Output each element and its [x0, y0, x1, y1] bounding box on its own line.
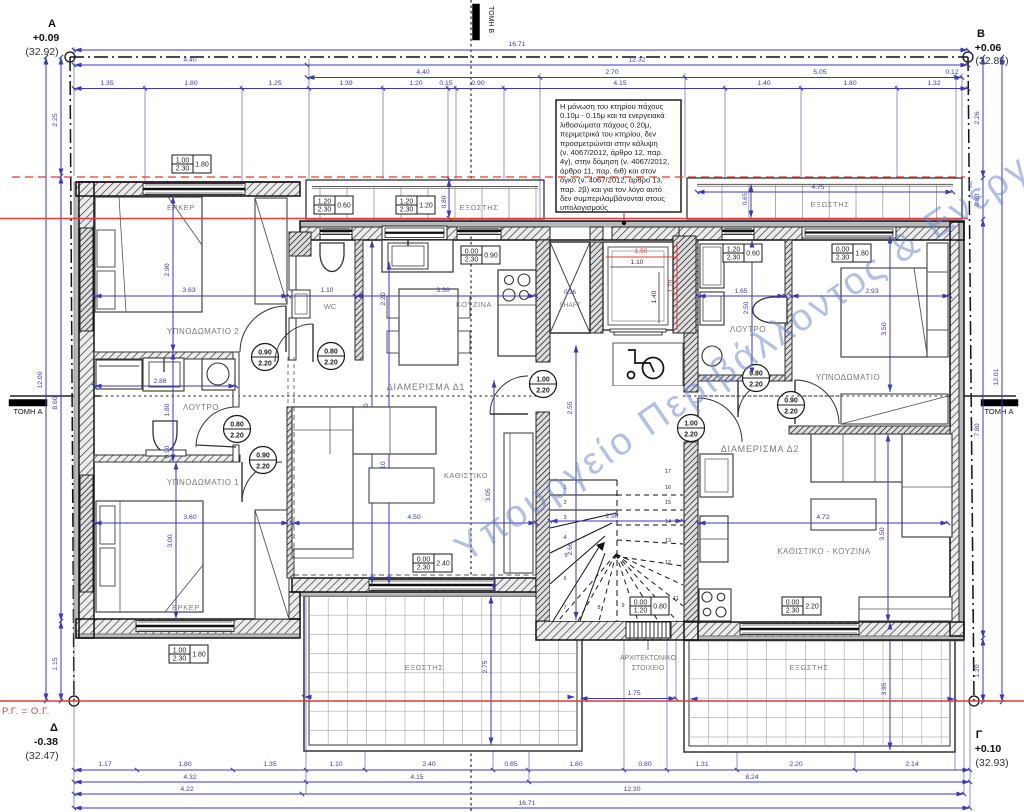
- svg-text:0.60: 0.60: [746, 251, 760, 258]
- svg-text:B: B: [977, 28, 985, 40]
- svg-text:0.00: 0.00: [465, 249, 479, 256]
- svg-text:2.14: 2.14: [905, 761, 918, 768]
- svg-text:2.26: 2.26: [974, 111, 981, 124]
- svg-text:2.40: 2.40: [422, 761, 435, 768]
- svg-text:2.20: 2.20: [258, 361, 272, 368]
- svg-text:ΕΞΩΣΤΗΣ: ΕΞΩΣΤΗΣ: [405, 663, 444, 672]
- svg-text:3.30: 3.30: [436, 287, 449, 294]
- svg-text:1.31: 1.31: [695, 761, 708, 768]
- svg-text:+0.10: +0.10: [975, 743, 1002, 755]
- svg-text:1.10: 1.10: [631, 259, 644, 266]
- svg-text:ΕΞΩΣΤΗΣ: ΕΞΩΣΤΗΣ: [811, 200, 850, 209]
- svg-text:0.00: 0.00: [634, 600, 648, 607]
- svg-text:1.40: 1.40: [757, 80, 770, 87]
- svg-text:3.95: 3.95: [881, 682, 888, 695]
- svg-text:ΚΑΘΙΣΤΙΚΟ - ΚΟΥΖΙΝΑ: ΚΑΘΙΣΤΙΚΟ - ΚΟΥΖΙΝΑ: [777, 547, 871, 556]
- svg-text:2.30: 2.30: [173, 656, 187, 663]
- svg-text:15: 15: [665, 500, 671, 506]
- svg-text:0.10μ - 0.15μ και τα ενεργειακ: 0.10μ - 0.15μ και τα ενεργειακά: [560, 111, 665, 120]
- svg-text:0.90: 0.90: [164, 445, 171, 458]
- svg-text:0.90: 0.90: [484, 253, 498, 260]
- svg-text:1.17: 1.17: [98, 761, 111, 768]
- svg-text:16.71: 16.71: [508, 41, 525, 48]
- svg-text:2.40: 2.40: [436, 561, 450, 568]
- svg-text:ΚΟΥΖΙΝΑ: ΚΟΥΖΙΝΑ: [456, 300, 492, 309]
- svg-text:1.35: 1.35: [263, 761, 276, 768]
- svg-text:6: 6: [563, 576, 566, 582]
- svg-text:2.20: 2.20: [230, 433, 244, 440]
- svg-text:4.40: 4.40: [183, 57, 196, 64]
- svg-text:13: 13: [665, 538, 671, 544]
- svg-text:3.50: 3.50: [881, 322, 888, 335]
- svg-text:12: 12: [665, 560, 671, 566]
- svg-text:1.35: 1.35: [100, 80, 113, 87]
- svg-text:2.70: 2.70: [605, 69, 618, 76]
- svg-text:ΔΙΑΜΕΡΙΣΜΑ Δ1: ΔΙΑΜΕΡΙΣΜΑ Δ1: [387, 382, 466, 392]
- svg-text:Η μόνωση του κτηρίου πάχους: Η μόνωση του κτηρίου πάχους: [560, 102, 664, 111]
- svg-text:ΚΑΘΙΣΤΙΚΟ: ΚΑΘΙΣΤΙΚΟ: [444, 471, 488, 480]
- svg-text:1.70: 1.70: [668, 279, 675, 292]
- svg-text:0.26: 0.26: [564, 290, 576, 296]
- svg-text:υπολογισμούς: υπολογισμούς: [560, 203, 608, 212]
- svg-text:1.25: 1.25: [268, 80, 281, 87]
- svg-text:4.15: 4.15: [410, 774, 423, 781]
- svg-text:0.90: 0.90: [258, 350, 272, 357]
- svg-text:άρθρο 11, παρ. 6ιθ) και στον: άρθρο 11, παρ. 6ιθ) και στον: [560, 166, 656, 175]
- svg-text:4.22: 4.22: [180, 786, 193, 793]
- svg-text:1.32: 1.32: [927, 80, 940, 87]
- svg-text:Δ: Δ: [50, 722, 58, 734]
- svg-text:2.30: 2.30: [727, 255, 741, 262]
- svg-text:(32.86): (32.86): [975, 55, 1008, 67]
- svg-text:2.55: 2.55: [567, 401, 574, 414]
- svg-text:0.80: 0.80: [230, 422, 244, 429]
- svg-text:2.75: 2.75: [482, 660, 489, 673]
- svg-text:1.20: 1.20: [409, 80, 422, 87]
- svg-text:1.00: 1.00: [176, 158, 190, 165]
- svg-text:8: 8: [597, 605, 600, 611]
- svg-text:0.80: 0.80: [653, 604, 667, 611]
- svg-text:1.20: 1.20: [634, 608, 648, 615]
- svg-text:(32.93): (32.93): [975, 757, 1008, 769]
- svg-text:1.10: 1.10: [329, 761, 342, 768]
- svg-text:A: A: [48, 18, 56, 30]
- svg-text:4γ), στην δόμηση (ν. 4067/2012: 4γ), στην δόμηση (ν. 4067/2012,: [560, 157, 669, 166]
- svg-text:ΣΤΟΙΧΕΙΟ: ΣΤΟΙΧΕΙΟ: [632, 665, 665, 672]
- svg-text:(32.92): (32.92): [25, 46, 58, 58]
- svg-text:ΥΠΝΟΔΩΜΑΤΙΟ: ΥΠΝΟΔΩΜΑΤΙΟ: [816, 373, 881, 382]
- svg-text:περιμετρικά του κτηρίου, δεν: περιμετρικά του κτηρίου, δεν: [560, 130, 656, 139]
- svg-text:προσμετρώνται στην κάλυψη: προσμετρώνται στην κάλυψη: [560, 139, 658, 148]
- svg-text:1.10: 1.10: [321, 287, 334, 294]
- svg-text:3.60: 3.60: [183, 514, 196, 521]
- svg-text:(32.47): (32.47): [25, 750, 58, 762]
- svg-text:Ρ.Γ. = Ο.Γ.: Ρ.Γ. = Ο.Γ.: [2, 706, 50, 717]
- svg-text:2.30: 2.30: [176, 166, 190, 173]
- svg-text:14: 14: [665, 519, 671, 525]
- svg-text:WC: WC: [324, 302, 337, 311]
- svg-text:2.20: 2.20: [789, 761, 802, 768]
- svg-text:2.20: 2.20: [749, 382, 763, 389]
- svg-text:2.20: 2.20: [684, 432, 698, 439]
- svg-text:2.30: 2.30: [465, 257, 479, 264]
- svg-text:2.25: 2.25: [52, 113, 59, 126]
- svg-text:2.90: 2.90: [164, 263, 171, 276]
- svg-text:2.20: 2.20: [536, 388, 550, 395]
- svg-text:0.00: 0.00: [836, 247, 850, 254]
- svg-text:2.20: 2.20: [380, 292, 387, 305]
- svg-text:1.50: 1.50: [635, 248, 648, 255]
- svg-text:+0.06: +0.06: [975, 42, 1002, 54]
- svg-text:ΤΟΜΗ A: ΤΟΜΗ A: [13, 407, 42, 416]
- svg-text:δεν συμπεριλαμβάνονται στους: δεν συμπεριλαμβάνονται στους: [560, 194, 665, 203]
- svg-text:1.20: 1.20: [727, 247, 741, 254]
- svg-text:2.20: 2.20: [805, 604, 819, 611]
- svg-text:SHAFT: SHAFT: [559, 302, 580, 309]
- svg-text:7: 7: [563, 605, 566, 611]
- svg-text:0.80: 0.80: [638, 761, 651, 768]
- svg-text:7.80: 7.80: [974, 423, 981, 436]
- svg-text:3: 3: [563, 515, 566, 521]
- svg-text:2.30: 2.30: [400, 207, 414, 214]
- svg-text:0.90: 0.90: [256, 453, 270, 460]
- svg-text:0.15: 0.15: [439, 80, 452, 87]
- svg-text:(ν. 4067/2012, άρθρο 12, παρ.: (ν. 4067/2012, άρθρο 12, παρ.: [560, 148, 663, 157]
- svg-text:0.65: 0.65: [742, 192, 749, 205]
- svg-text:ΛΟΥΤΡΟ: ΛΟΥΤΡΟ: [183, 403, 219, 412]
- svg-text:11: 11: [673, 596, 679, 602]
- svg-text:4: 4: [563, 535, 566, 541]
- svg-text:0.65: 0.65: [504, 761, 517, 768]
- svg-text:4.72: 4.72: [816, 514, 829, 521]
- svg-text:2.20: 2.20: [324, 360, 338, 367]
- svg-text:ΔΙΑΜΕΡΙΣΜΑ Δ2: ΔΙΑΜΕΡΙΣΜΑ Δ2: [721, 444, 800, 454]
- svg-text:0.00: 0.00: [786, 600, 800, 607]
- svg-text:1.80: 1.80: [569, 761, 582, 768]
- svg-text:1.00: 1.00: [536, 377, 550, 384]
- svg-text:16.71: 16.71: [518, 800, 535, 807]
- svg-text:0.90: 0.90: [784, 398, 798, 405]
- svg-text:3.00: 3.00: [167, 534, 174, 547]
- svg-text:0.00: 0.00: [417, 557, 431, 564]
- svg-text:2.30: 2.30: [786, 608, 800, 615]
- svg-text:2.30: 2.30: [417, 565, 431, 572]
- svg-text:4.32: 4.32: [183, 774, 196, 781]
- svg-text:2.66: 2.66: [567, 542, 574, 555]
- svg-text:0.60: 0.60: [337, 203, 351, 210]
- svg-text:1.65: 1.65: [735, 288, 748, 295]
- svg-text:16: 16: [665, 485, 671, 491]
- svg-text:2.30: 2.30: [318, 207, 332, 214]
- svg-text:3.63: 3.63: [182, 287, 195, 294]
- svg-text:0.80: 0.80: [324, 349, 338, 356]
- svg-text:1.80: 1.80: [178, 761, 191, 768]
- svg-text:ΕΞΩΣΤΗΣ: ΕΞΩΣΤΗΣ: [790, 663, 829, 672]
- svg-text:3.50: 3.50: [879, 527, 886, 540]
- svg-text:3.05: 3.05: [485, 488, 492, 501]
- svg-text:λιθοσώματα πάχους 0.20μ,: λιθοσώματα πάχους 0.20μ,: [560, 120, 651, 129]
- svg-text:παρ. 2β) και για τον λόγο αυτό: παρ. 2β) και για τον λόγο αυτό: [560, 185, 662, 194]
- svg-text:Γ: Γ: [976, 729, 983, 741]
- svg-text:1.20: 1.20: [419, 203, 433, 210]
- svg-text:12.30: 12.30: [623, 786, 640, 793]
- svg-text:8.24: 8.24: [745, 774, 758, 781]
- svg-text:1.20: 1.20: [974, 664, 981, 677]
- svg-text:8.60: 8.60: [52, 396, 59, 409]
- svg-text:1.80: 1.80: [192, 652, 206, 659]
- svg-text:2.90: 2.90: [606, 513, 619, 520]
- svg-text:9: 9: [621, 603, 624, 609]
- svg-text:12.01: 12.01: [993, 368, 1000, 385]
- svg-text:1.80: 1.80: [164, 403, 171, 416]
- svg-text:17: 17: [665, 469, 671, 475]
- svg-text:2.20: 2.20: [784, 409, 798, 416]
- svg-text:4.75: 4.75: [812, 184, 825, 191]
- svg-text:ΥΠΝΟΔΩΜΑΤΙΟ 1: ΥΠΝΟΔΩΜΑΤΙΟ 1: [167, 478, 239, 487]
- svg-text:ΤΟΜΗ Β: ΤΟΜΗ Β: [487, 6, 494, 33]
- svg-text:2.88: 2.88: [154, 378, 167, 385]
- svg-text:ΤΟΜΗ A: ΤΟΜΗ A: [984, 407, 1013, 416]
- svg-text:0.80: 0.80: [441, 195, 448, 208]
- svg-text:2.20: 2.20: [256, 464, 270, 471]
- svg-text:ΑΡΧΙΤΕΚΤΟΝΙΚΟ: ΑΡΧΙΤΕΚΤΟΝΙΚΟ: [620, 655, 677, 662]
- svg-text:+0.09: +0.09: [33, 32, 60, 44]
- svg-text:1.00: 1.00: [173, 648, 187, 655]
- svg-text:1.39: 1.39: [339, 80, 352, 87]
- svg-text:4.40: 4.40: [416, 69, 429, 76]
- svg-text:4.50: 4.50: [407, 514, 420, 521]
- svg-text:ΕΞΩΣΤΗΣ: ΕΞΩΣΤΗΣ: [460, 203, 499, 212]
- svg-text:1.15: 1.15: [52, 657, 59, 670]
- svg-text:12.32: 12.32: [628, 57, 645, 64]
- svg-text:1.20: 1.20: [318, 199, 332, 206]
- svg-text:ΕΡΚΕΡ: ΕΡΚΕΡ: [167, 203, 195, 212]
- svg-text:-0.38: -0.38: [34, 736, 58, 748]
- svg-text:1.40: 1.40: [651, 290, 658, 303]
- svg-text:12.00: 12.00: [37, 371, 44, 388]
- svg-text:1.20: 1.20: [400, 199, 414, 206]
- svg-text:1.75: 1.75: [627, 690, 640, 697]
- svg-text:2.50: 2.50: [743, 301, 750, 314]
- svg-text:1.80: 1.80: [184, 80, 197, 87]
- svg-text:ΥΠΝΟΔΩΜΑΤΙΟ 2: ΥΠΝΟΔΩΜΑΤΙΟ 2: [167, 327, 239, 336]
- svg-text:5.05: 5.05: [813, 69, 826, 76]
- svg-text:0.90: 0.90: [471, 80, 484, 87]
- svg-text:1.80: 1.80: [195, 162, 209, 169]
- svg-text:4.15: 4.15: [613, 80, 626, 87]
- svg-text:0.12: 0.12: [945, 69, 958, 76]
- svg-text:1.80: 1.80: [843, 80, 856, 87]
